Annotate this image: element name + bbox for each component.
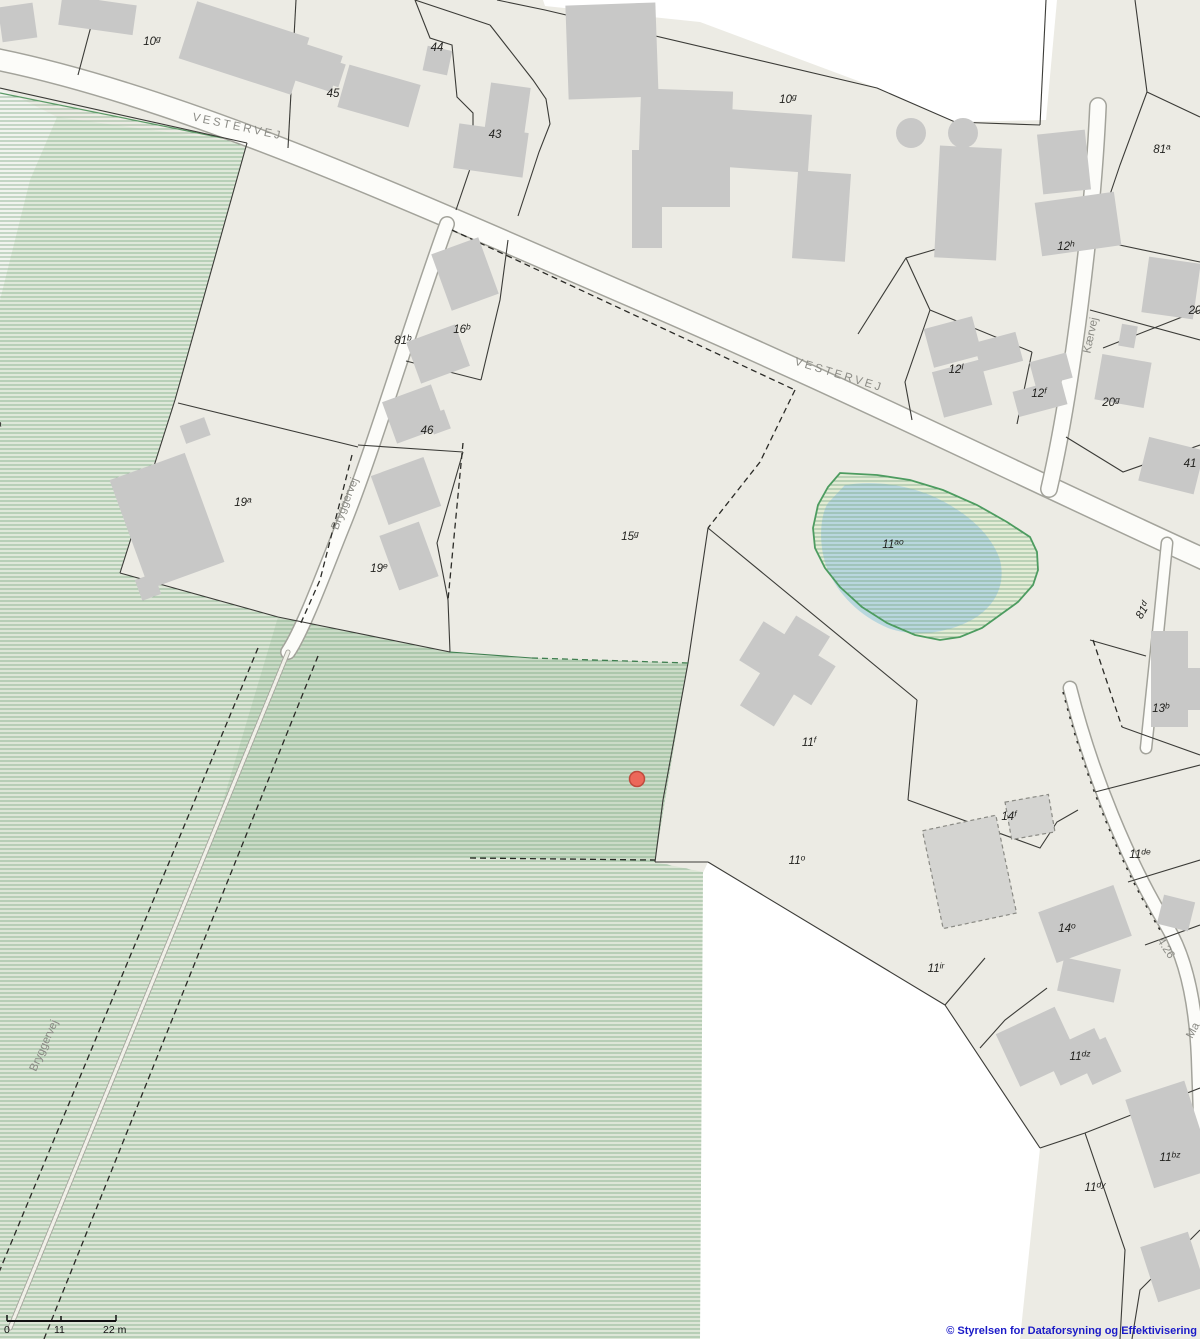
scale-start-label: 0 xyxy=(4,1324,10,1336)
scale-mid-label: 11 xyxy=(54,1324,65,1336)
map-point-marker[interactable] xyxy=(630,772,645,787)
attribution-text: © Styrelsen for Dataforsyning og Effekti… xyxy=(946,1325,1197,1337)
scale-end-label: 22 m xyxy=(103,1324,127,1336)
cadastral-map-canvas[interactable]: 10g44454310g81a12h2016b81b12l12f20g7a464… xyxy=(0,0,1200,1339)
building-12h xyxy=(1037,130,1091,195)
parcel-number-label: 46 xyxy=(421,425,434,437)
map-viewport[interactable]: 10g44454310g81a12h2016b81b12l12f20g7a464… xyxy=(0,0,1200,1339)
parcel-number-label: 45 xyxy=(327,88,340,100)
parcel-number-label: 20 xyxy=(1188,305,1200,317)
parcel-number-label: 44 xyxy=(431,42,444,54)
parcel-number-label: 43 xyxy=(489,129,502,141)
parcel-number-label: 41 xyxy=(1184,458,1197,470)
